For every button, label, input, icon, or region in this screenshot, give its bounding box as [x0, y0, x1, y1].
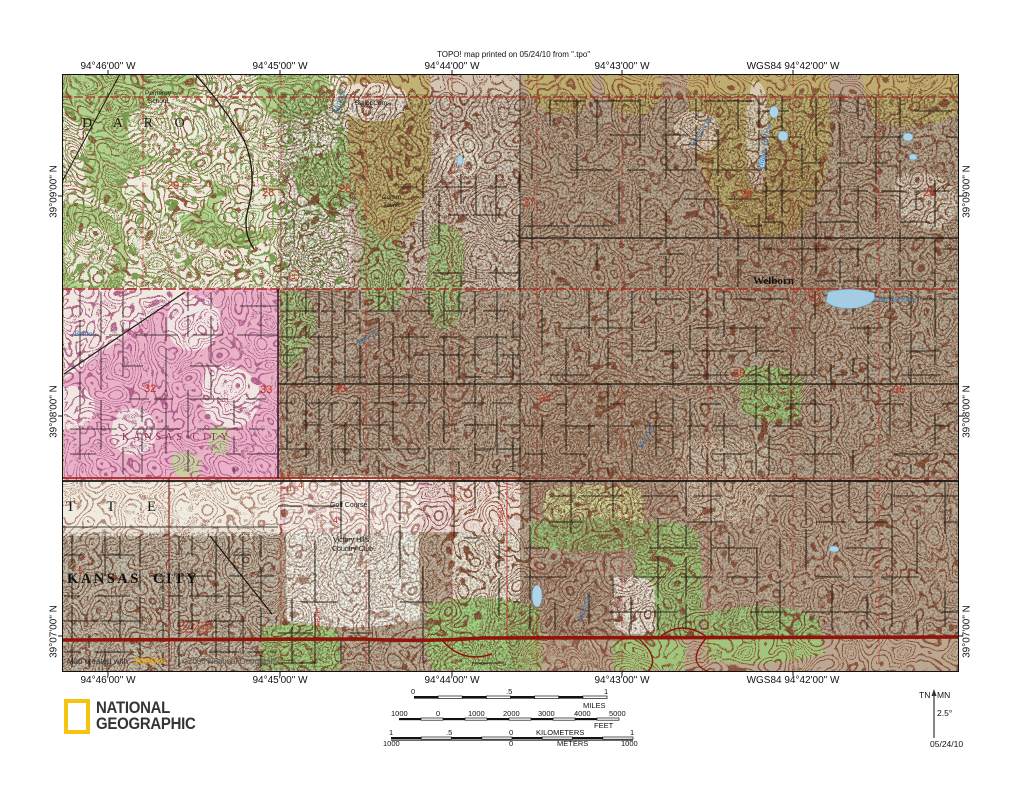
- svg-text:26: 26: [923, 187, 935, 199]
- svg-text:24: 24: [183, 625, 191, 632]
- svg-text:05/24/10: 05/24/10: [930, 739, 963, 749]
- svg-text:TREATY: TREATY: [316, 607, 322, 630]
- svg-text:T T E: T T E: [66, 499, 170, 515]
- svg-text:3: 3: [452, 494, 457, 504]
- svg-text:2000: 2000: [503, 709, 520, 718]
- svg-text:29: 29: [167, 180, 179, 192]
- svg-text:KANSAS CITY: KANSAS CITY: [67, 571, 199, 587]
- svg-text:KILOMETERS: KILOMETERS: [536, 728, 584, 737]
- svg-text:5: 5: [78, 566, 83, 576]
- svg-text:TREATY: TREATY: [499, 503, 505, 526]
- svg-text:0: 0: [411, 688, 415, 696]
- svg-text:1: 1: [630, 728, 634, 737]
- svg-text:Tower: Tower: [383, 202, 401, 209]
- svg-text:Victory Hills: Victory Hills: [333, 537, 370, 544]
- svg-text:33: 33: [260, 384, 272, 396]
- svg-text:27: 27: [523, 197, 535, 209]
- svg-text:Sailor Cem: Sailor Cem: [355, 100, 387, 107]
- svg-text:32: 32: [144, 383, 156, 395]
- svg-text:Lake Welborn: Lake Welborn: [873, 295, 918, 304]
- svg-text:4000: 4000: [574, 709, 591, 718]
- svg-text:4: 4: [333, 515, 338, 525]
- svg-text:Map created with: Map created with: [67, 657, 128, 666]
- svg-text:34: 34: [539, 393, 551, 405]
- svg-text:5: 5: [292, 274, 296, 281]
- svg-text:28: 28: [339, 183, 351, 195]
- svg-text:.5: .5: [506, 688, 512, 696]
- svg-text:School: School: [148, 98, 168, 105]
- svg-text:26: 26: [740, 189, 752, 201]
- svg-text:5000: 5000: [609, 709, 626, 718]
- svg-text:MN: MN: [937, 690, 950, 700]
- svg-text:1000: 1000: [391, 709, 408, 718]
- svg-text:6: 6: [812, 294, 816, 301]
- svg-text:36: 36: [893, 384, 905, 396]
- svg-text:Pomeroy: Pomeroy: [145, 90, 172, 97]
- svg-text:.5: .5: [446, 728, 452, 737]
- svg-text:35: 35: [733, 368, 745, 380]
- svg-text:1: 1: [604, 688, 608, 696]
- svg-text:TOPO!®: TOPO!®: [134, 657, 165, 666]
- svg-text:Bethel: Bethel: [74, 329, 95, 338]
- svg-text:Welborn: Welborn: [753, 275, 794, 287]
- svg-text:D A R O: D A R O: [82, 116, 194, 131]
- svg-text:Comm: Comm: [382, 194, 401, 201]
- svg-text:©2006 National Geographic: ©2006 National Geographic: [182, 657, 281, 666]
- svg-text:1000: 1000: [468, 709, 485, 718]
- svg-text:KANSAS CITY: KANSAS CITY: [122, 432, 232, 443]
- svg-text:0: 0: [509, 728, 513, 737]
- svg-text:T 11 S: T 11 S: [280, 486, 299, 493]
- svg-text:FEET: FEET: [594, 721, 614, 730]
- svg-text:0: 0: [436, 709, 440, 718]
- svg-text:T 10 S: T 10 S: [280, 471, 300, 478]
- svg-text:33: 33: [334, 383, 346, 395]
- svg-text:4: 4: [298, 480, 303, 490]
- svg-text:2.5°: 2.5°: [937, 708, 952, 718]
- svg-text:40: 40: [201, 625, 209, 632]
- svg-text:1: 1: [389, 728, 393, 737]
- svg-text:28: 28: [262, 187, 274, 199]
- svg-text:Golf Course: Golf Course: [330, 502, 367, 509]
- svg-text:TN: TN: [919, 690, 930, 700]
- svg-text:3000: 3000: [538, 709, 555, 718]
- svg-text:Country Club: Country Club: [332, 546, 373, 553]
